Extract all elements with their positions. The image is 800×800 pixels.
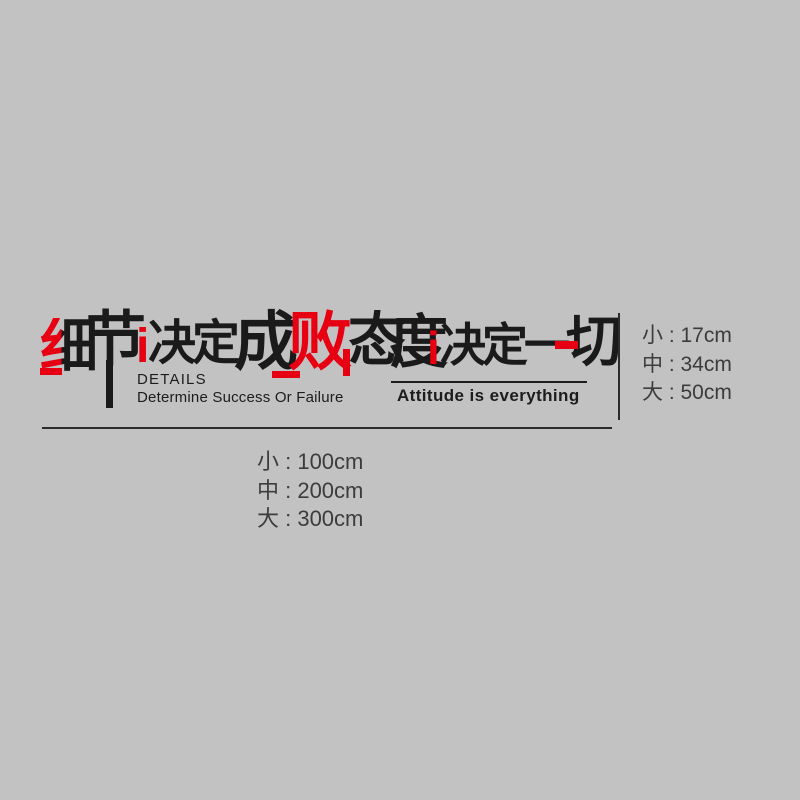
headline-char-jue-1: 决 — [148, 320, 194, 368]
size-row-large: 大 : 300cm — [257, 505, 363, 534]
red-underline-accent-2 — [272, 371, 300, 378]
red-vertical-accent — [343, 349, 350, 376]
size-row-small: 小 : 100cm — [257, 448, 363, 477]
headline-accent-i-2: i — [427, 325, 438, 371]
height-size-list: 小 : 17cm 中 : 34cm 大 : 50cm — [642, 322, 732, 408]
product-image: 细 节 i 决 定 成 败 态 度 i 决 定 一 切 DETAILS Dete… — [0, 0, 800, 800]
caption-details: DETAILS — [137, 371, 207, 388]
headline-char-ding-2: 定 — [482, 322, 526, 368]
caption-determine: Determine Success Or Failure — [137, 389, 344, 406]
size-row-large: 大 : 50cm — [642, 379, 732, 408]
headline-char-ding-1: 定 — [192, 320, 238, 368]
width-size-list: 小 : 100cm 中 : 200cm 大 : 300cm — [257, 448, 363, 534]
horizontal-rule-line — [42, 427, 612, 429]
caption-attitude: Attitude is everything — [397, 386, 580, 406]
red-underline-accent — [40, 368, 62, 375]
headline-accent-i-1: i — [136, 323, 147, 371]
vertical-divider-line — [618, 313, 620, 420]
size-row-medium: 中 : 34cm — [642, 351, 732, 380]
size-row-small: 小 : 17cm — [642, 322, 732, 351]
headline-char-cheng: 成 — [234, 310, 296, 374]
red-dash-accent — [555, 341, 578, 349]
headline-char-bai: 败 — [288, 310, 350, 374]
size-row-medium: 中 : 200cm — [257, 477, 363, 506]
black-descender-stroke — [106, 360, 113, 408]
headline-char-jue-2: 决 — [440, 322, 484, 368]
attitude-overline — [391, 381, 587, 383]
